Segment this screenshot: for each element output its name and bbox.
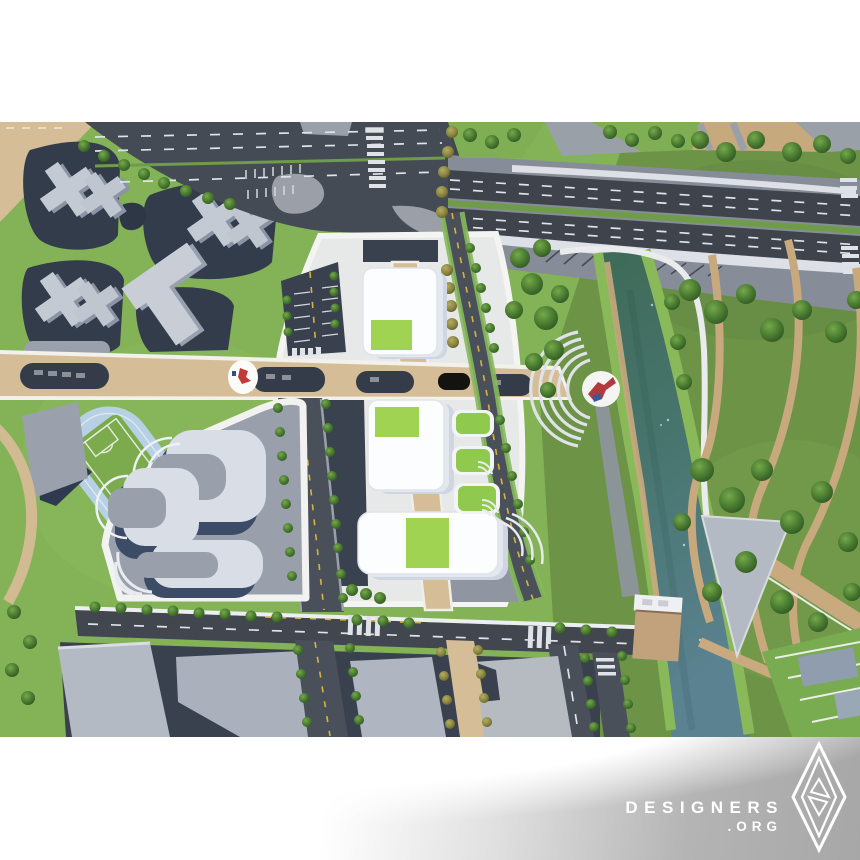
main-building-north [363,268,447,359]
green-roof [406,518,449,568]
terraced-building [136,540,263,598]
river-deck [630,594,682,661]
watermark-tld: .ORG [625,820,782,834]
a-design-award-diamond-icon [790,741,848,853]
green-roof [375,407,419,437]
masterplan-render-page: DESIGNERS .ORG [0,0,860,860]
sculpture-plaza-bird [582,371,620,407]
watermark-brand: DESIGNERS [625,799,784,816]
watermark-band: DESIGNERS .ORG [0,737,860,860]
green-pavilions [452,410,500,516]
green-roof [371,320,412,350]
masterplan-aerial-render [0,0,860,860]
flag-sculpture-blue-icon [232,371,236,376]
main-building-middle [368,400,454,494]
sculpture-plaza-flag [228,360,258,394]
main-building-south [358,512,508,580]
